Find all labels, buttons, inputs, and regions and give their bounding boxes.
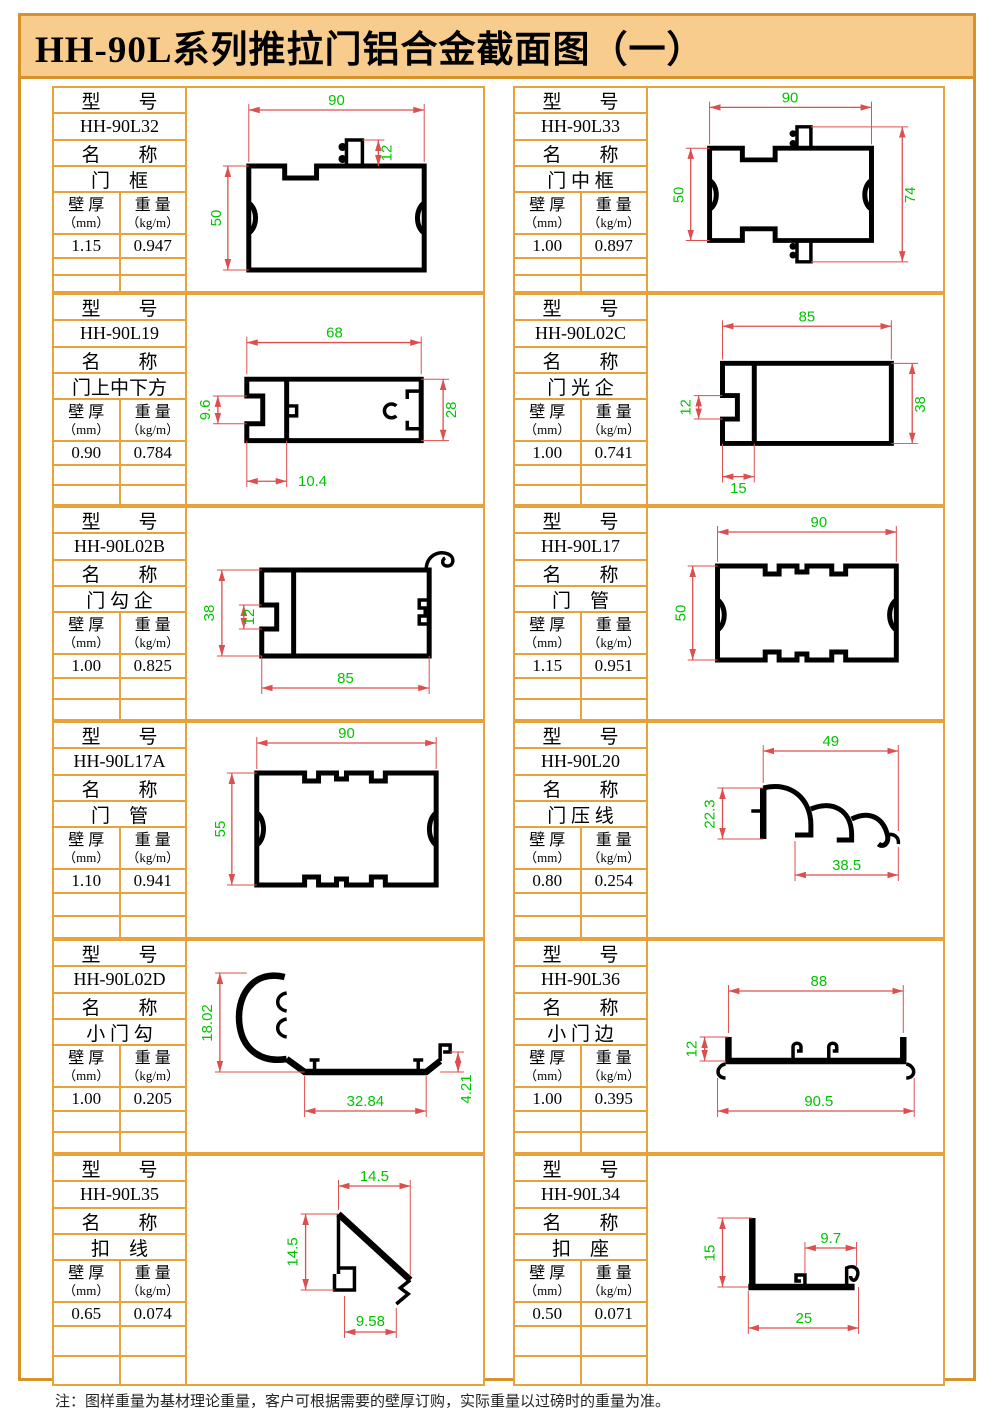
spec-table: 型 号 HH-90L34 名 称 扣 座 壁 厚（mm） 重 量（kg/m） 0… — [515, 1156, 648, 1384]
svg-text:38: 38 — [913, 396, 929, 412]
cross-section-drawing: 49 22.3 38.5 — [648, 723, 943, 937]
spec-table: 型 号 HH-90L02B 名 称 门 勾 企 壁 厚（mm） 重 量（kg/m… — [54, 508, 187, 719]
profile-svg: 90 50 — [648, 508, 943, 719]
svg-text:85: 85 — [337, 670, 354, 687]
svg-text:28: 28 — [444, 402, 460, 419]
cross-section-drawing: 90 12 50 — [187, 88, 483, 291]
svg-text:22.3: 22.3 — [702, 799, 719, 828]
cross-section-drawing: 18.02 32.84 4.21 — [187, 941, 483, 1152]
profile-svg: 14.5 14.5 9.58 — [187, 1156, 483, 1384]
thickness-weight-header: 壁 厚（mm） 重 量（kg/m） — [54, 193, 185, 235]
spec-table: 型 号 HH-90L19 名 称 门上中下方 壁 厚（mm） 重 量（kg/m）… — [54, 295, 187, 504]
spec-table: 型 号 HH-90L17 名 称 门 管 壁 厚（mm） 重 量（kg/m） 1… — [515, 508, 648, 719]
cross-section-drawing: 38 12 85 — [187, 508, 483, 719]
profile-svg: 88 12 90.5 — [648, 941, 943, 1152]
svg-text:74: 74 — [903, 187, 919, 203]
empty-row — [54, 276, 185, 291]
page-title: HH-90L系列推拉门铝合金截面图（一） — [21, 16, 973, 79]
svg-text:85: 85 — [799, 309, 816, 325]
cross-section-drawing: 14.5 14.5 9.58 — [187, 1156, 483, 1384]
footnote: 注：图样重量为基材理论重量，客户可根据需要的壁厚订购，实际重量以过磅时的重量为准… — [55, 1390, 670, 1411]
cross-section-drawing: 15 9.7 25 — [648, 1156, 943, 1384]
profile-cell-hh-90l17a: 型 号 HH-90L17A 名 称 门 管 壁 厚（mm） 重 量（kg/m） … — [52, 721, 485, 939]
svg-text:38.5: 38.5 — [832, 857, 861, 874]
svg-text:90: 90 — [338, 725, 355, 742]
svg-text:10.4: 10.4 — [298, 474, 327, 490]
profile-svg: 49 22.3 38.5 — [648, 723, 943, 937]
svg-text:14.5: 14.5 — [285, 1237, 302, 1266]
cross-section-drawing: 85 12 38 15 — [648, 295, 943, 504]
spec-table: 型 号 HH-90L02D 名 称 小 门 勾 壁 厚（mm） 重 量（kg/m… — [54, 941, 187, 1152]
svg-text:4.21: 4.21 — [458, 1074, 475, 1103]
profile-cell-hh-90l32: 型 号 HH-90L32 名 称 门 框 壁 厚（mm） 重 量（kg/m） 1… — [52, 86, 485, 293]
svg-text:90: 90 — [811, 514, 828, 531]
name-header: 名 称 — [54, 141, 185, 167]
svg-text:25: 25 — [796, 1310, 813, 1327]
profile-svg: 90 50 74 — [648, 88, 943, 291]
dim-label: 90 — [328, 92, 345, 109]
spec-table: 型 号 HH-90L20 名 称 门 压 线 壁 厚（mm） 重 量（kg/m）… — [515, 723, 648, 937]
spec-table: 型 号 HH-90L35 名 称 扣 线 壁 厚（mm） 重 量（kg/m） 0… — [54, 1156, 187, 1384]
thickness-weight-values: 1.150.947 — [54, 235, 185, 259]
svg-text:90.5: 90.5 — [804, 1093, 833, 1110]
svg-text:88: 88 — [811, 973, 828, 990]
profile-cell-hh-90l02d: 型 号 HH-90L02D 名 称 小 门 勾 壁 厚（mm） 重 量（kg/m… — [52, 939, 485, 1154]
spec-table: 型 号 HH-90L33 名 称 门 中 框 壁 厚（mm） 重 量（kg/m）… — [515, 88, 648, 291]
profile-svg: 90 55 — [187, 723, 483, 937]
page-frame: HH-90L系列推拉门铝合金截面图（一） 型 号 HH-90L32 名 称 门 … — [18, 13, 976, 1381]
profile-svg: 68 9.6 28 10.4 — [187, 295, 483, 504]
profile-cell-hh-90l20: 型 号 HH-90L20 名 称 门 压 线 壁 厚（mm） 重 量（kg/m）… — [513, 721, 945, 939]
profile-cell-hh-90l36: 型 号 HH-90L36 名 称 小 门 边 壁 厚（mm） 重 量（kg/m）… — [513, 939, 945, 1154]
profile-cell-hh-90l17: 型 号 HH-90L17 名 称 门 管 壁 厚（mm） 重 量（kg/m） 1… — [513, 506, 945, 721]
dim-label: 50 — [208, 210, 225, 227]
profile-svg: 85 12 38 15 — [648, 295, 943, 504]
profile-cell-hh-90l34: 型 号 HH-90L34 名 称 扣 座 壁 厚（mm） 重 量（kg/m） 0… — [513, 1154, 945, 1386]
profile-grid: 型 号 HH-90L32 名 称 门 框 壁 厚（mm） 重 量（kg/m） 1… — [52, 86, 945, 1386]
profile-cell-hh-90l35: 型 号 HH-90L35 名 称 扣 线 壁 厚（mm） 重 量（kg/m） 0… — [52, 1154, 485, 1386]
spec-table: 型 号 HH-90L17A 名 称 门 管 壁 厚（mm） 重 量（kg/m） … — [54, 723, 187, 937]
spec-table: 型 号 HH-90L32 名 称 门 框 壁 厚（mm） 重 量（kg/m） 1… — [54, 88, 187, 291]
profile-svg: 38 12 85 — [187, 508, 483, 719]
profile-svg: 15 9.7 25 — [648, 1156, 943, 1384]
spec-table: 型 号 HH-90L36 名 称 小 门 边 壁 厚（mm） 重 量（kg/m）… — [515, 941, 648, 1152]
svg-text:12: 12 — [679, 399, 695, 415]
svg-text:18.02: 18.02 — [199, 1004, 216, 1042]
svg-text:55: 55 — [212, 821, 229, 838]
profile-cell-hh-90l02b: 型 号 HH-90L02B 名 称 门 勾 企 壁 厚（mm） 重 量（kg/m… — [52, 506, 485, 721]
svg-text:49: 49 — [822, 733, 839, 750]
name-value: 门 框 — [54, 167, 185, 193]
profile-svg: 90 12 50 — [187, 88, 483, 291]
svg-text:12: 12 — [241, 609, 258, 626]
svg-text:14.5: 14.5 — [360, 1168, 389, 1185]
profile-cell-hh-90l33: 型 号 HH-90L33 名 称 门 中 框 壁 厚（mm） 重 量（kg/m）… — [513, 86, 945, 293]
svg-text:15: 15 — [730, 481, 747, 497]
svg-text:50: 50 — [672, 187, 688, 203]
dim-label: 12 — [378, 145, 395, 162]
svg-text:9.58: 9.58 — [356, 1313, 385, 1330]
profile-cell-hh-90l19: 型 号 HH-90L19 名 称 门上中下方 壁 厚（mm） 重 量（kg/m）… — [52, 293, 485, 506]
cross-section-drawing: 68 9.6 28 10.4 — [187, 295, 483, 504]
svg-text:12: 12 — [684, 1041, 701, 1058]
cross-section-drawing: 88 12 90.5 — [648, 941, 943, 1152]
svg-text:50: 50 — [673, 605, 690, 622]
svg-text:9.7: 9.7 — [820, 1230, 841, 1247]
svg-text:15: 15 — [702, 1245, 719, 1262]
svg-text:90: 90 — [782, 91, 799, 107]
model-header: 型 号 — [54, 88, 185, 114]
empty-row — [54, 259, 185, 276]
profile-svg: 18.02 32.84 4.21 — [187, 941, 483, 1152]
svg-text:68: 68 — [326, 326, 343, 342]
cross-section-drawing: 90 50 74 — [648, 88, 943, 291]
model-value: HH-90L32 — [54, 114, 185, 141]
svg-text:9.6: 9.6 — [198, 400, 214, 421]
svg-text:32.84: 32.84 — [347, 1093, 384, 1110]
cross-section-drawing: 90 50 — [648, 508, 943, 719]
svg-text:38: 38 — [201, 605, 218, 622]
cross-section-drawing: 90 55 — [187, 723, 483, 937]
profile-cell-hh-90l02c: 型 号 HH-90L02C 名 称 门 光 企 壁 厚（mm） 重 量（kg/m… — [513, 293, 945, 506]
spec-table: 型 号 HH-90L02C 名 称 门 光 企 壁 厚（mm） 重 量（kg/m… — [515, 295, 648, 504]
